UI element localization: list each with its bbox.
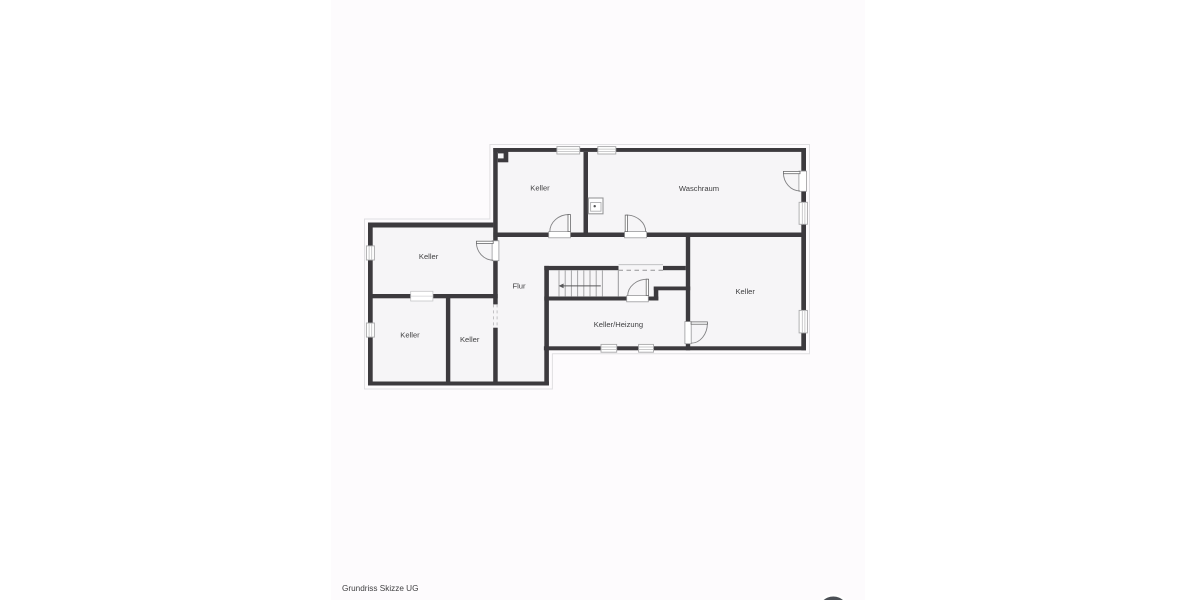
svg-text:Waschraum: Waschraum [679, 184, 719, 193]
svg-text:Keller: Keller [419, 252, 439, 261]
svg-text:Keller: Keller [460, 335, 480, 344]
svg-text:Keller/Heizung: Keller/Heizung [594, 320, 643, 329]
svg-text:Grundriss Skizze UG: Grundriss Skizze UG [342, 584, 418, 593]
svg-text:Keller: Keller [735, 287, 755, 296]
svg-text:Keller: Keller [530, 183, 550, 192]
svg-text:Keller: Keller [400, 331, 420, 340]
svg-text:Flur: Flur [512, 281, 526, 290]
